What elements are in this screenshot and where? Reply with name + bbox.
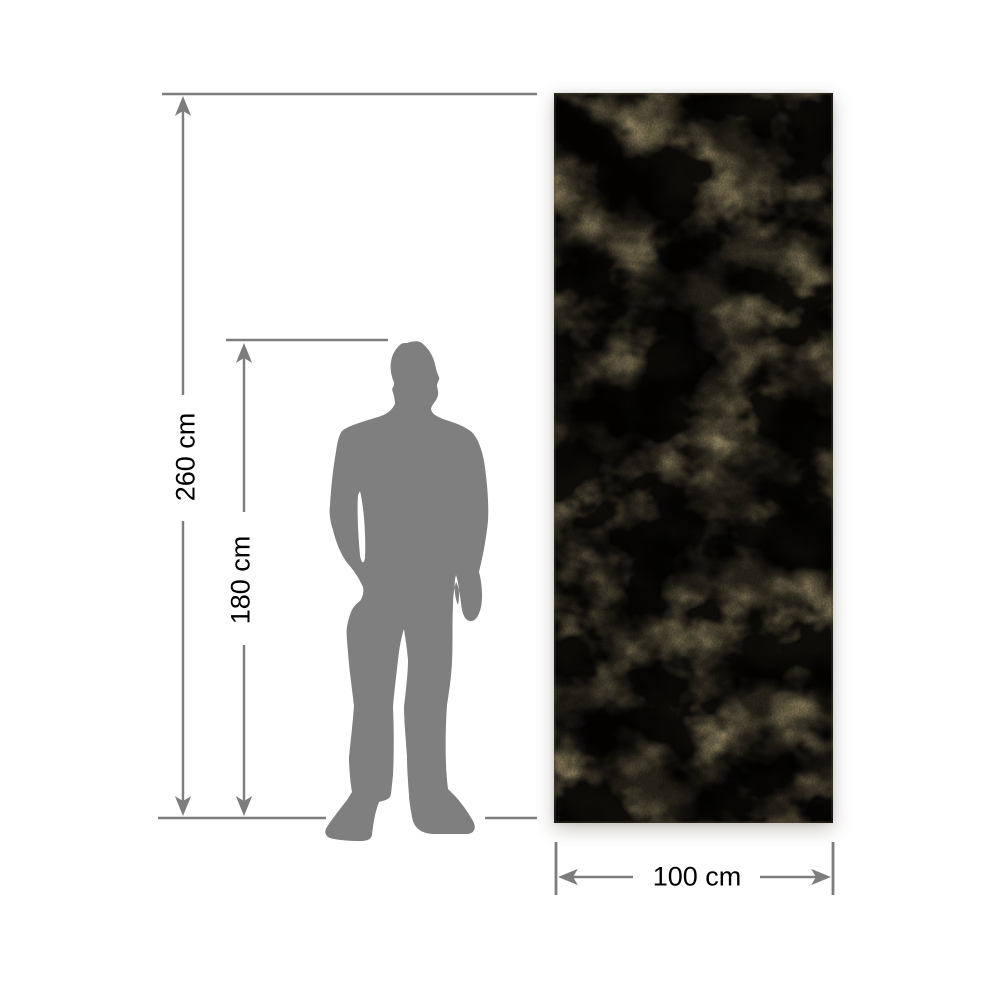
person-height-dimension-label: 180 cm (228, 536, 255, 625)
height-dimension-label: 260 cm (173, 413, 200, 502)
diagram-linework (0, 0, 1000, 1000)
width-dimension-label: 100 cm (653, 864, 742, 891)
dimension-diagram: 260 cm 180 cm 100 cm (0, 0, 1000, 1000)
person-silhouette (325, 341, 488, 841)
